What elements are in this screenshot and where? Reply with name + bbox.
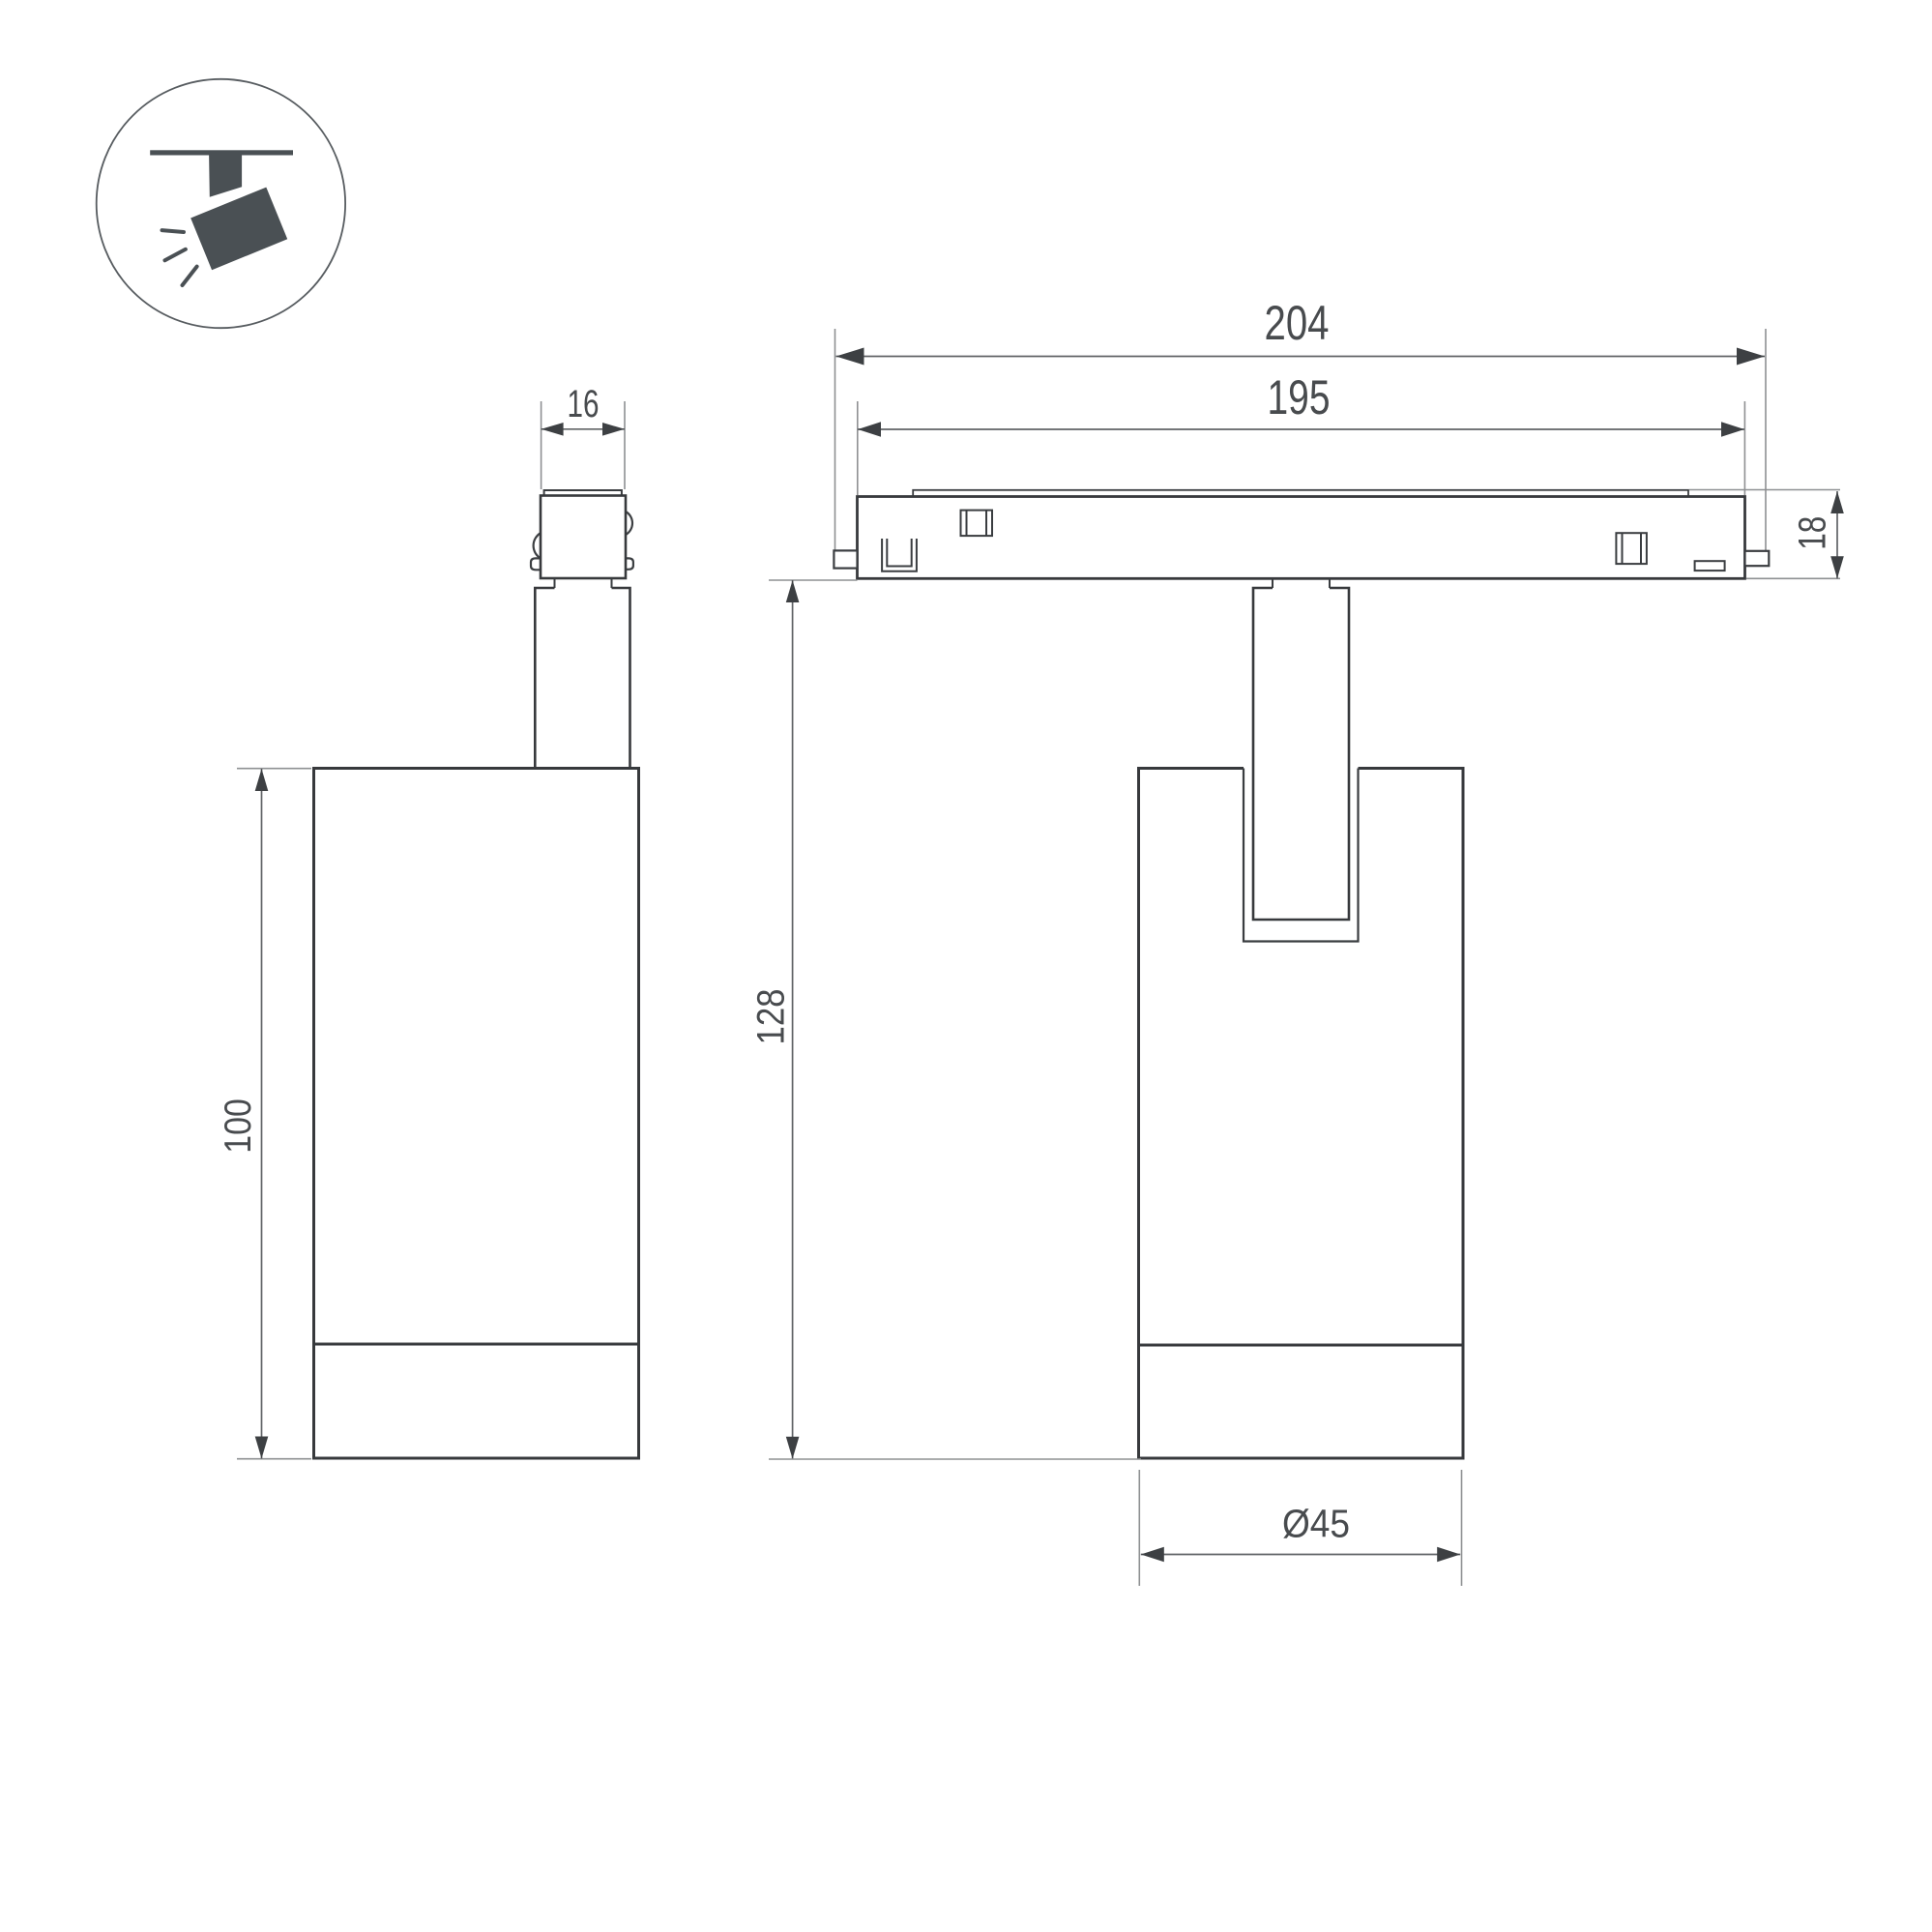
svg-text:195: 195: [1268, 370, 1331, 424]
svg-text:128: 128: [749, 989, 792, 1045]
svg-text:100: 100: [218, 1098, 259, 1154]
svg-text:18: 18: [1791, 516, 1833, 550]
svg-text:204: 204: [1265, 296, 1330, 350]
svg-text:Ø45: Ø45: [1282, 1501, 1350, 1545]
svg-text:16: 16: [568, 383, 600, 425]
